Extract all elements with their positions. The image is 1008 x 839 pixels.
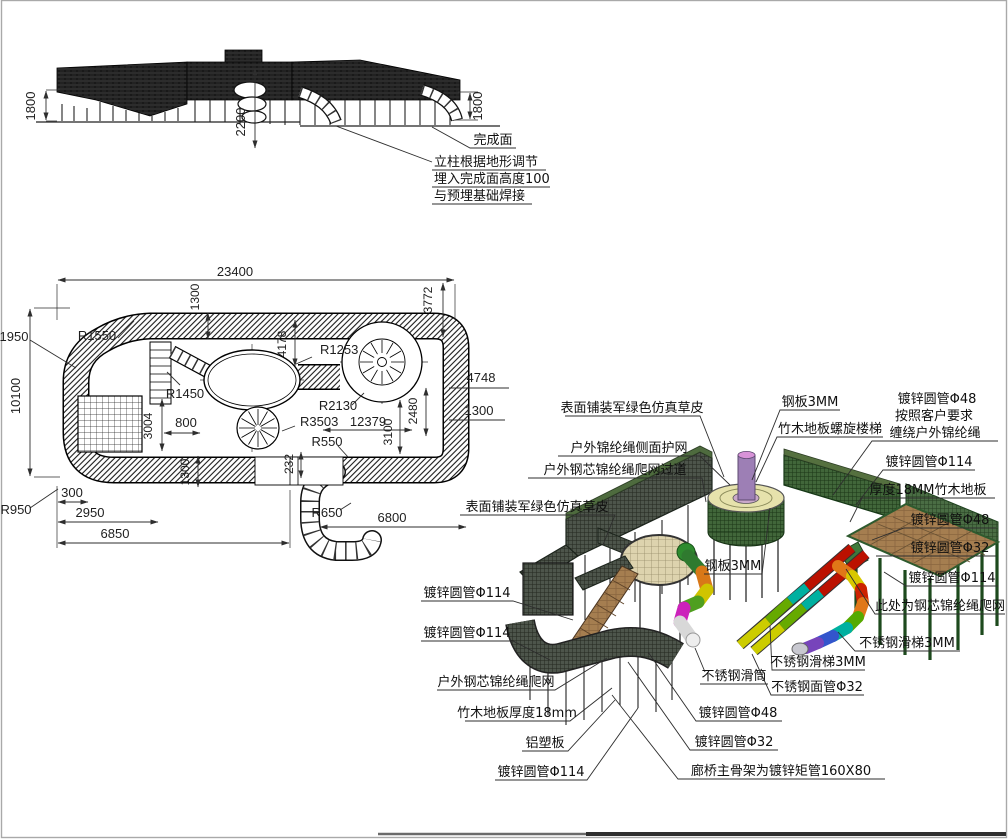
label-pipe48-bottom: 镀锌圆管Φ48 (699, 705, 778, 721)
label-surface-grass-top: 表面铺装军绿色仿真草皮 (560, 400, 703, 416)
drawing-canvas: 1800 2200 1800 完成面 立柱根据地形调节 埋入完成面高度100 与… (0, 0, 1008, 839)
dim-top-band: 1300 (188, 283, 202, 310)
label-steel-plate-mid: 钢板3MM (705, 559, 762, 574)
label-pipe32-right: 镀锌圆管Φ32 (911, 540, 990, 556)
dim-6850: 6850 (101, 526, 130, 541)
label-bridge-frame: 廊桥主骨架为镀锌矩管160X80 (691, 763, 871, 779)
dim-2950: 2950 (76, 505, 105, 520)
dim-r1550: R1550 (78, 328, 116, 343)
cad-drawing-sheet: 1800 2200 1800 完成面 立柱根据地形调节 埋入完成面高度100 与… (0, 0, 1008, 839)
label-pipe48-req-line2: 按照客户要求 (895, 408, 973, 424)
label-climb-net-left: 户外钢芯锦纶绳爬网 (437, 674, 554, 690)
label-slide3mm-right: 不锈钢滑梯3MM (859, 636, 955, 651)
label-finish-surface: 完成面 (473, 133, 512, 148)
label-floor18-right: 厚度18MM竹木地板 (870, 482, 987, 498)
dim-1950: 1950 (0, 329, 28, 344)
elevation-view: 1800 2200 1800 完成面 立柱根据地形调节 埋入完成面高度100 与… (23, 50, 550, 204)
dim-4178: 4178 (275, 330, 289, 357)
label-floor18-left: 竹木地板厚度18mm (457, 705, 577, 721)
dim-elev-left: 1800 (23, 92, 38, 121)
isometric-view: 表面铺装军绿色仿真草皮 户外锦纶绳侧面护网 户外钢芯锦纶绳爬网过道 表面铺装军绿… (421, 391, 1005, 780)
plan-climb-net-grid (78, 396, 142, 452)
label-pipe48-req-line3: 缠绕户外锦纶绳 (889, 425, 980, 441)
label-pipe114-left2: 镀锌圆管Φ114 (423, 625, 510, 641)
dim-elev-mid: 2200 (233, 108, 248, 137)
label-pipe48-req-line1: 镀锌圆管Φ48 (898, 391, 977, 407)
dim-r550: R550 (311, 434, 342, 449)
note-column-line1: 立柱根据地形调节 (434, 155, 538, 170)
label-pipe114-bottom: 镀锌圆管Φ114 (497, 764, 584, 780)
label-steel-plate-top: 钢板3MM (782, 395, 839, 410)
plan-fan-slide-circle (237, 407, 279, 449)
label-pipe48-right: 镀锌圆管Φ48 (911, 512, 990, 528)
label-pipe114-right1: 镀锌圆管Φ114 (885, 454, 972, 470)
dim-3004: 3004 (141, 412, 155, 439)
tower-purple-column (738, 455, 755, 500)
label-climb-net-here: 此处为钢芯锦纶绳爬网 (875, 599, 1005, 614)
label-pipe114-left1: 镀锌圆管Φ114 (423, 585, 510, 601)
label-alu-panel: 铝塑板 (525, 736, 564, 751)
label-slide3mm-mid: 不锈钢滑梯3MM (770, 655, 866, 670)
dim-elev-right: 1800 (470, 92, 485, 121)
plan-view: 23400 10100 1300 3772 1950 R1550 R1450 4… (0, 264, 509, 551)
label-pipe114-right2: 镀锌圆管Φ114 (908, 570, 995, 586)
label-surface-grass-left: 表面铺装军绿色仿真草皮 (465, 499, 608, 515)
label-climb-net-walkway: 户外钢芯锦纶绳爬网过道 (543, 462, 686, 478)
dim-6800: 6800 (378, 510, 407, 525)
dim-bottom-left-1300: 1300 (178, 458, 192, 485)
dim-232: 232 (282, 454, 296, 474)
dim-800: 800 (175, 415, 197, 430)
dim-right-1300: 1300 (465, 403, 494, 418)
dim-r3503: R3503 (300, 414, 338, 429)
dim-overall-height: 10100 (8, 378, 23, 414)
dim-3100: 3100 (381, 418, 395, 445)
label-side-net: 户外锦纶绳侧面护网 (570, 440, 687, 456)
dim-4748: 4748 (467, 370, 496, 385)
dim-r1450: R1450 (166, 386, 204, 401)
dim-2480: 2480 (406, 397, 420, 424)
ground-line (36, 122, 500, 126)
plan-bridge-crossing (255, 457, 343, 485)
dim-3772: 3772 (421, 286, 435, 313)
label-spiral-stairs: 竹木地板螺旋楼梯 (778, 422, 882, 437)
dim-r2130: R2130 (319, 398, 357, 413)
note-column-line3: 与预埋基础焊接 (434, 188, 525, 204)
note-column-line2: 埋入完成面高度100 (434, 171, 550, 187)
dim-300: 300 (61, 485, 83, 500)
dim-r950: R950 (0, 502, 31, 517)
label-pipe32-bottom: 镀锌圆管Φ32 (695, 734, 774, 750)
dim-r650: R650 (311, 505, 342, 520)
label-face-pipe32: 不锈钢面管Φ32 (771, 680, 863, 695)
dim-overall-width: 23400 (217, 264, 253, 279)
dim-r1253: R1253 (320, 342, 358, 357)
spiral-tube-slide (677, 543, 707, 647)
label-slide-tube: 不锈钢滑筒 (701, 668, 766, 684)
